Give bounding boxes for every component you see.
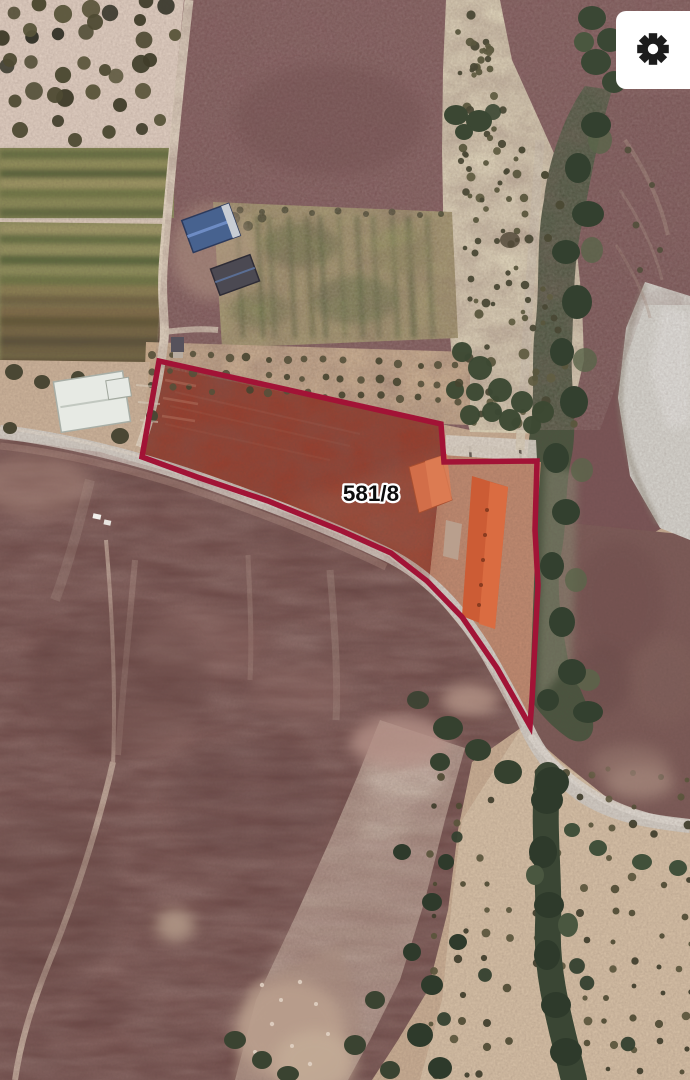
svg-text:581/8: 581/8	[343, 481, 399, 506]
